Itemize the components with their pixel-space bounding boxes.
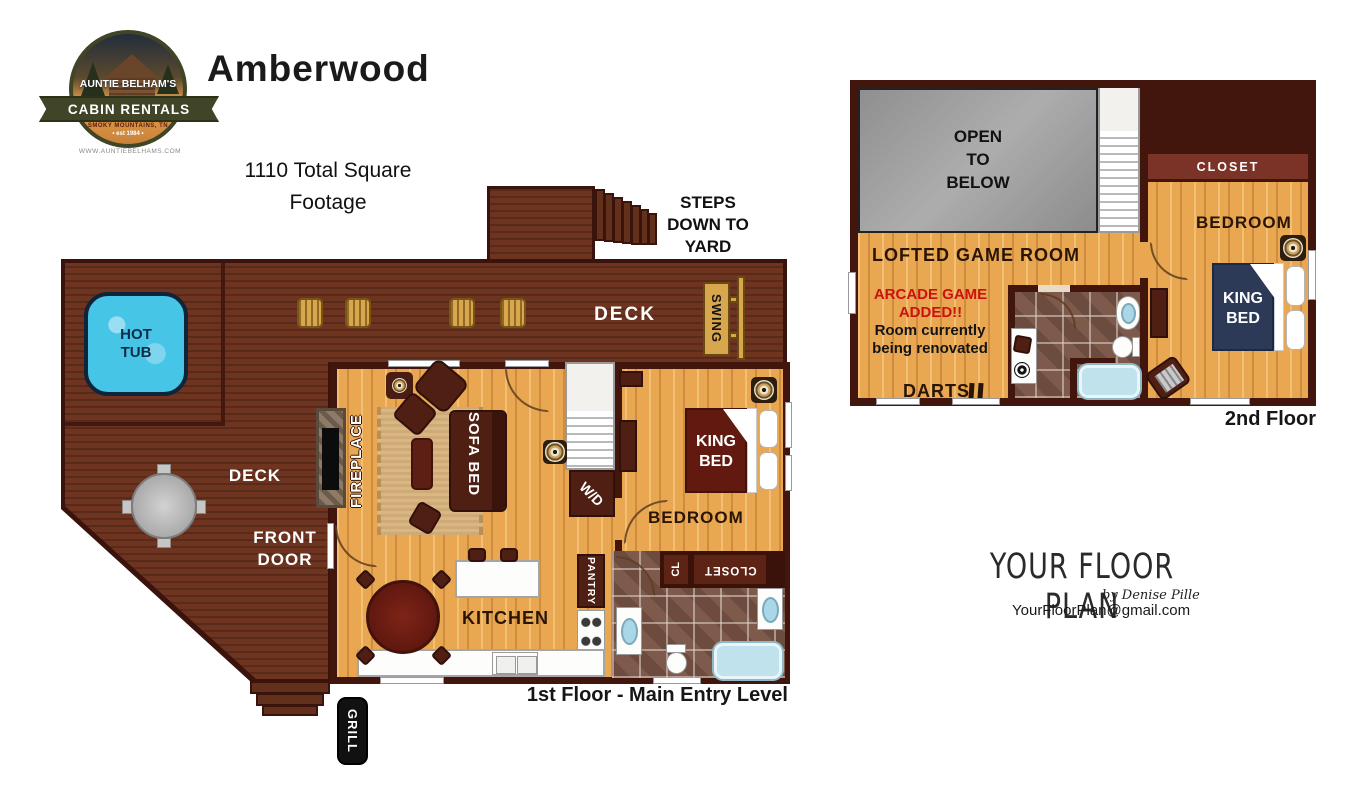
ceiling-fan-icon — [751, 377, 777, 403]
dresser-icon — [619, 420, 637, 472]
deck-left-label: DECK — [218, 466, 292, 486]
rocking-chair-icon — [345, 298, 371, 328]
entry-step — [262, 705, 318, 716]
logo-ribbon: CABIN RENTALS — [39, 96, 219, 122]
window — [848, 272, 856, 314]
window — [1308, 250, 1316, 300]
logo-url-text: WWW.AUNTIEBELHAMS.COM — [55, 148, 205, 155]
bar-stool-icon — [468, 548, 486, 562]
cl-label: CL — [670, 562, 682, 577]
window — [876, 398, 920, 405]
tub-alcove-wall — [1070, 358, 1115, 364]
king-bed-first-floor: KING BED — [685, 408, 781, 493]
bathtub-icon — [714, 643, 782, 679]
toilet-icon — [666, 652, 687, 674]
sink-icon — [1116, 296, 1140, 330]
chair-cushion — [1155, 364, 1184, 393]
dresser-icon — [619, 371, 643, 387]
hot-tub-label: HOT TUB — [120, 326, 152, 362]
sink-basin — [1121, 303, 1136, 324]
table-lamp-icon — [390, 376, 409, 395]
bedroom-door-opening — [1140, 242, 1148, 278]
kitchen-island — [455, 560, 540, 598]
square-footage-text: 1110 Total Square Footage — [228, 155, 428, 218]
game-room-label: LOFTED GAME ROOM — [872, 245, 1080, 266]
patio-table-icon — [131, 473, 197, 539]
swing-link — [729, 296, 738, 303]
front-door-label: FRONT DOOR — [248, 527, 322, 571]
closet-upper-label: CLOSET — [1197, 160, 1260, 174]
stair-treads — [567, 411, 613, 468]
bedroom-label: BEDROOM — [648, 508, 744, 528]
first-floor-caption: 1st Floor - Main Entry Level — [520, 684, 788, 707]
tub-alcove-wall — [1070, 358, 1077, 398]
sink-icon — [762, 597, 779, 623]
washer-dryer: W/D — [569, 470, 615, 517]
toilet-tank — [1132, 337, 1140, 357]
toilet-icon — [1112, 336, 1133, 358]
bathroom-vanity — [616, 607, 642, 655]
stair-treads — [1100, 131, 1138, 231]
sink-basin — [517, 656, 537, 674]
closet-cl: CL — [664, 555, 688, 584]
pillow-icon — [1286, 266, 1305, 306]
deck-upper-label: DECK — [585, 304, 665, 326]
closet-upper: CLOSET — [1148, 154, 1308, 182]
open-to-below-label: OPEN TO BELOW — [946, 126, 1009, 195]
bedroom-upper-label: BEDROOM — [1196, 213, 1292, 233]
coffee-table-icon — [411, 438, 433, 490]
kitchen-sink-icon — [492, 652, 538, 675]
open-to-below: OPEN TO BELOW — [858, 88, 1098, 233]
patio-chair-icon — [157, 538, 171, 548]
patio-chair-icon — [196, 500, 206, 514]
grill-badge: GRILL — [337, 697, 368, 765]
washer-dryer-label: W/D — [577, 478, 608, 509]
floor-plan-page: AUNTIE BELHAM'S SMOKY MOUNTAINS, TN • es… — [0, 0, 1366, 801]
stove-icon — [577, 610, 605, 654]
dresser-icon — [1150, 288, 1168, 338]
renovation-note: Room currently being renovated — [855, 322, 1005, 358]
pantry-label: PANTRY — [585, 557, 597, 605]
ceiling-fan-icon — [1280, 235, 1306, 261]
kitchen-counter — [357, 649, 605, 677]
second-floor-caption: 2nd Floor — [1160, 408, 1316, 431]
swing-bench: SWING — [703, 282, 730, 356]
sofa-bed-label: SOFA BED — [465, 412, 482, 510]
logo-banner-text: CABIN RENTALS — [68, 102, 190, 117]
logo-region-text: SMOKY MOUNTAINS, TN — [73, 123, 183, 129]
steps-down-label: STEPS DOWN TO YARD — [648, 192, 768, 258]
attic-void — [1140, 88, 1308, 154]
king-bed-upper-label: KING BED — [1212, 289, 1274, 329]
window — [653, 677, 701, 684]
swing-link — [729, 332, 738, 339]
bar-stool-icon — [500, 548, 518, 562]
credit-byline: by Denise Pille — [1102, 588, 1200, 603]
bathroom-wall — [1008, 285, 1140, 292]
arcade-note: ARCADE GAME ADDED!! — [858, 286, 1003, 322]
kitchen-label: KITCHEN — [462, 608, 549, 629]
sink-icon — [621, 618, 638, 645]
grill-label: GRILL — [345, 709, 360, 753]
pantry: PANTRY — [577, 554, 605, 608]
sofa-back-cushion — [492, 412, 505, 510]
staircase-upper — [1098, 88, 1140, 233]
credit-email: YourFloorPlan@gmail.com — [1012, 602, 1190, 619]
round-sink-icon — [1014, 362, 1030, 378]
window — [785, 455, 792, 491]
company-logo: AUNTIE BELHAM'S SMOKY MOUNTAINS, TN • es… — [55, 30, 205, 158]
fireplace-label: FIREPLACE — [348, 402, 365, 508]
bathroom-door-opening — [1038, 285, 1070, 292]
dining-table-icon — [366, 580, 440, 654]
logo-cabin-icon — [103, 54, 161, 80]
hot-tub: HOT TUB — [84, 292, 188, 396]
door-opening — [505, 360, 549, 367]
window — [380, 677, 444, 684]
logo-arc-text: AUNTIE BELHAM'S — [73, 78, 183, 90]
fireplace-firebox — [322, 428, 339, 490]
rocking-chair-icon — [500, 298, 526, 328]
pillow-icon — [1286, 310, 1305, 350]
king-bed-label: KING BED — [685, 432, 747, 472]
window — [952, 398, 1000, 405]
page-title: Amberwood — [207, 48, 430, 90]
closet: CLOSET — [694, 555, 766, 584]
sink-basin — [496, 656, 516, 674]
bathroom-vanity — [757, 588, 783, 630]
rocking-chair-icon — [297, 298, 323, 328]
swing-pole — [737, 276, 745, 360]
vanity-stool-icon — [1013, 335, 1033, 355]
closet-label: CLOSET — [704, 564, 757, 576]
sofa-bed: SOFA BED — [449, 410, 507, 512]
pillow-icon — [759, 410, 778, 448]
staircase — [565, 362, 615, 470]
window — [785, 402, 792, 448]
ceiling-fan-icon — [543, 440, 567, 464]
upper-landing — [487, 186, 595, 264]
bathtub-icon — [1079, 365, 1140, 398]
king-bed-second-floor: KING BED — [1212, 263, 1308, 351]
swing-label: SWING — [709, 294, 724, 343]
rocking-chair-icon — [449, 298, 475, 328]
window — [1190, 398, 1250, 405]
front-door-opening — [327, 523, 334, 569]
pillow-icon — [759, 452, 778, 490]
logo-est-text: • est 1984 • — [73, 131, 183, 137]
logo-badge: AUNTIE BELHAM'S SMOKY MOUNTAINS, TN • es… — [69, 30, 187, 148]
